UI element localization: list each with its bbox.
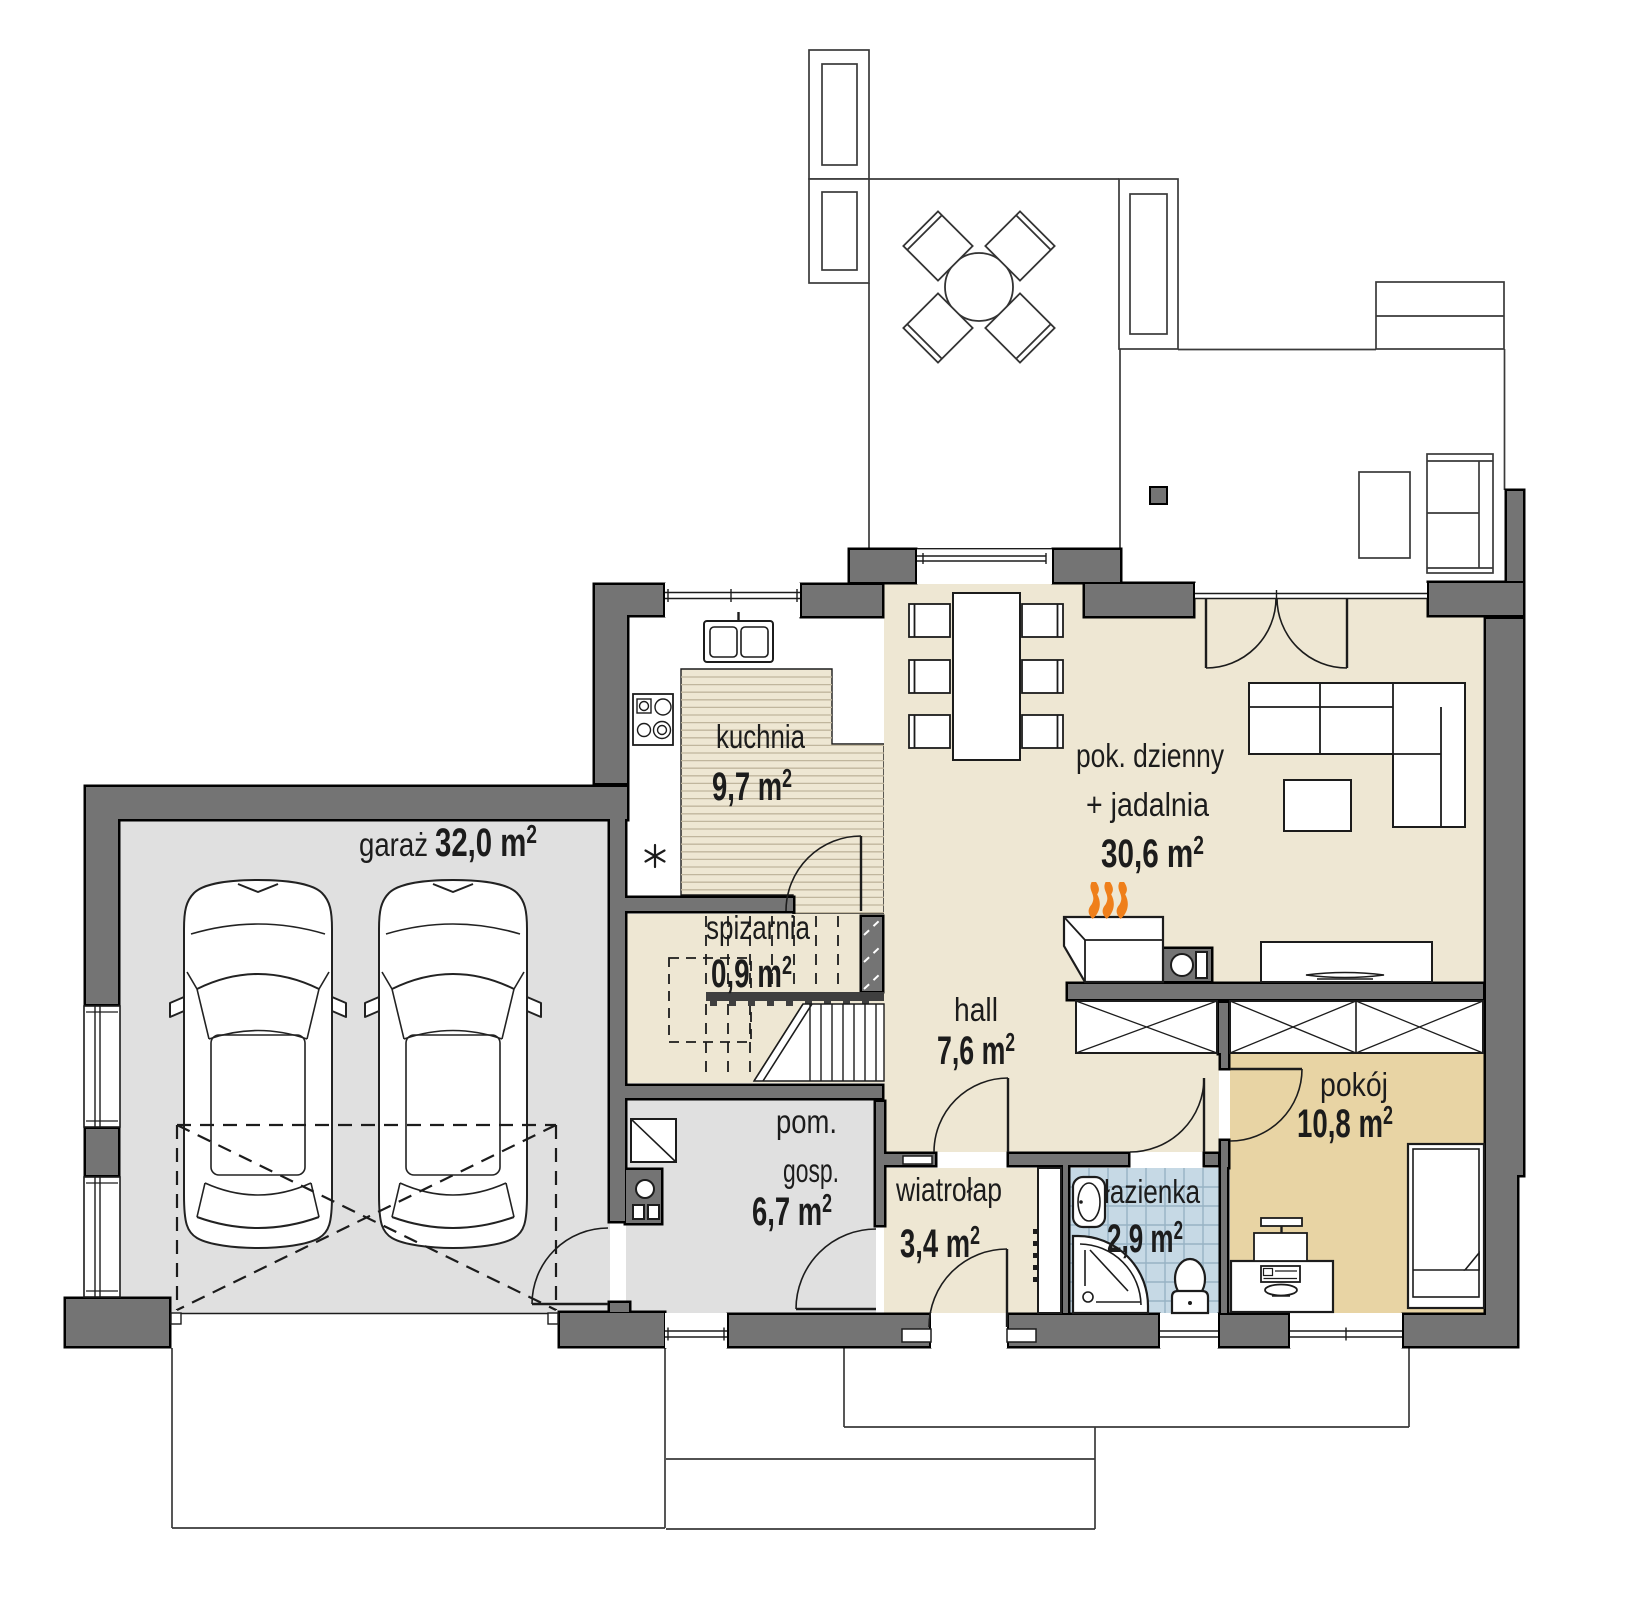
svg-text:pokój: pokój — [1320, 1066, 1388, 1103]
svg-text:30,6 m2: 30,6 m2 — [1101, 830, 1204, 876]
svg-text:9,7 m2: 9,7 m2 — [712, 763, 792, 809]
svg-text:+ jadalnia: + jadalnia — [1086, 786, 1210, 823]
svg-text:pom.: pom. — [776, 1103, 837, 1140]
svg-text:10,8 m2: 10,8 m2 — [1297, 1100, 1393, 1146]
svg-text:hall: hall — [954, 991, 998, 1028]
svg-text:3,4 m2: 3,4 m2 — [900, 1220, 980, 1266]
svg-text:garaż: garaż — [359, 826, 428, 863]
svg-text:gosp.: gosp. — [783, 1152, 839, 1189]
svg-text:2,9 m2: 2,9 m2 — [1107, 1215, 1183, 1261]
svg-text:pok. dzienny: pok. dzienny — [1076, 737, 1224, 774]
svg-text:spizarnia: spizarnia — [706, 909, 810, 946]
svg-text:wiatrołap: wiatrołap — [895, 1171, 1002, 1208]
svg-text:kuchnia: kuchnia — [716, 718, 806, 755]
svg-text:7,6 m2: 7,6 m2 — [937, 1027, 1015, 1073]
svg-text:6,7 m2: 6,7 m2 — [752, 1188, 832, 1234]
svg-text:32,0 m2: 32,0 m2 — [435, 819, 537, 865]
svg-text:0,9 m2: 0,9 m2 — [711, 950, 792, 996]
svg-text:łazienka: łazienka — [1104, 1173, 1201, 1210]
